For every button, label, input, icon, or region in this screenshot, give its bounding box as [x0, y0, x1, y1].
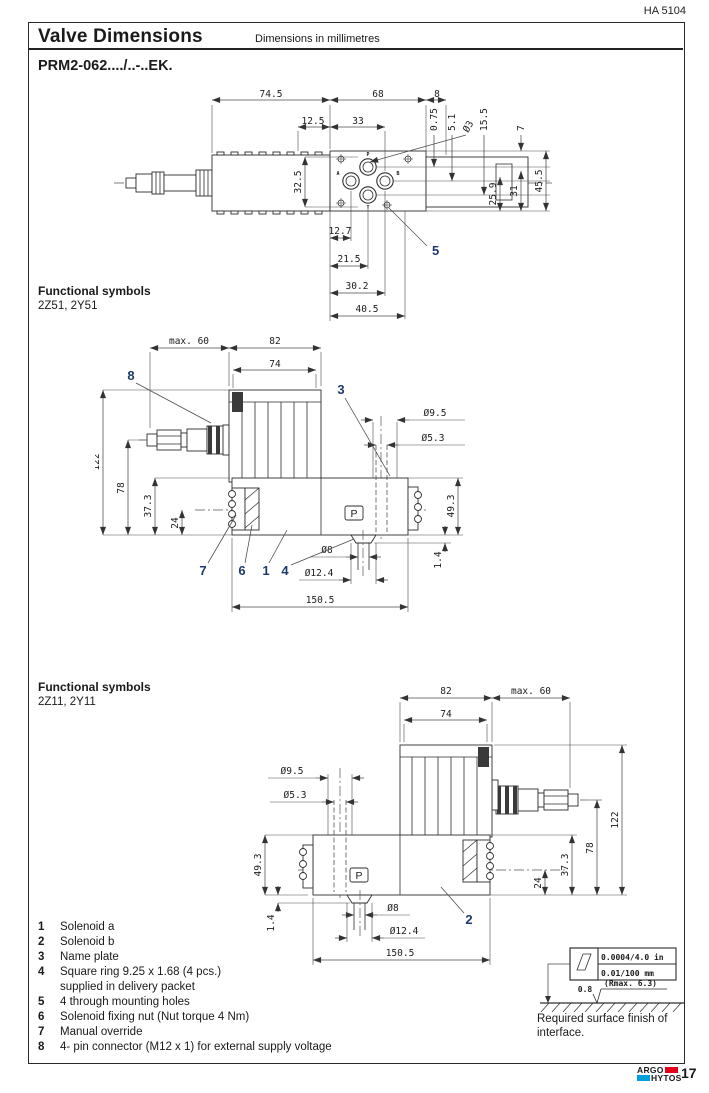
dim-493: 49.3 [446, 495, 457, 518]
brand-logo: ARGO HYTOS [637, 1066, 682, 1082]
port-label-p: P [355, 870, 362, 882]
callout-8: 8 [127, 368, 134, 383]
solenoid-fixing-nut [463, 840, 477, 882]
legend-item-text: Manual override [60, 1025, 332, 1040]
square-ring-port [351, 530, 376, 576]
dim-78: 78 [116, 482, 127, 494]
dim-68: 68 [372, 89, 384, 100]
legend-item: 3Name plate [38, 950, 332, 965]
document-code: HA 5104 [540, 5, 686, 17]
dim-d95: Ø9.5 [281, 766, 304, 777]
legend-item-number: 1 [38, 920, 60, 935]
dim-33: 33 [352, 116, 363, 127]
functional-symbols-heading: Functional symbols [38, 680, 151, 694]
dim-14: 1.4 [433, 551, 444, 568]
legend-item-number: 5 [38, 995, 60, 1010]
dim-78: 78 [585, 842, 596, 854]
callout-4: 4 [281, 563, 289, 578]
legend-item-number: 4 [38, 965, 60, 980]
top-view-drawing: P A B T 74.5 68 8 12.5 33 [100, 85, 560, 325]
dim-24: 24 [170, 517, 181, 529]
dim-127: 12.7 [329, 226, 352, 237]
datasheet-page: HA 5104 Valve Dimensions Dimensions in m… [0, 0, 709, 1093]
legend-item-text: supplied in delivery packet [60, 980, 332, 995]
dim-122: 122 [610, 811, 621, 828]
legend-item-text: Solenoid fixing nut (Nut torque 4 Nm) [60, 1010, 332, 1025]
functional-symbols-1: Functional symbols 2Z51, 2Y51 [38, 284, 151, 312]
dim-51: 5.1 [447, 114, 458, 131]
roughness-icon [593, 989, 601, 1003]
dim-31: 31 [509, 185, 520, 197]
top-view-outline [114, 151, 552, 214]
dim-74: 74 [440, 709, 452, 720]
dim-215: 21.5 [338, 254, 361, 265]
dim-d95: Ø9.5 [424, 408, 447, 419]
legend-item: 84- pin connector (M12 x 1) for external… [38, 1040, 332, 1055]
functional-symbols-heading: Functional symbols [38, 284, 151, 298]
dim-405: 40.5 [356, 304, 379, 315]
callout-7: 7 [199, 563, 206, 578]
ground-hatch [541, 1003, 681, 1012]
legend-item-text: 4 through mounting holes [60, 995, 332, 1010]
functional-symbols-codes: 2Z11, 2Y11 [38, 696, 151, 708]
dim-d53: Ø5.3 [284, 790, 307, 801]
dim-24: 24 [533, 877, 544, 889]
legend-item-text: Solenoid a [60, 920, 332, 935]
dim-745: 74.5 [260, 89, 283, 100]
dim-155: 15.5 [479, 108, 490, 131]
dim-122: 122 [95, 453, 102, 470]
dim-d124: Ø12.4 [390, 926, 419, 937]
legend-item: 54 through mounting holes [38, 995, 332, 1010]
callout-6: 6 [238, 563, 245, 578]
dim-259: 25.9 [488, 182, 499, 205]
legend-item: 6Solenoid fixing nut (Nut torque 4 Nm) [38, 1010, 332, 1025]
dim-373: 37.3 [560, 854, 571, 877]
legend-item-number: 2 [38, 935, 60, 950]
page-title: Valve Dimensions [38, 26, 203, 48]
legend-item-number: 3 [38, 950, 60, 965]
legend-item-text: Solenoid b [60, 935, 332, 950]
callout-5: 5 [432, 243, 439, 258]
brand-logo-hytos: HYTOS [651, 1074, 682, 1082]
logo-cyan-block [637, 1075, 650, 1081]
dim-373: 37.3 [143, 495, 154, 518]
dim-1505: 150.5 [386, 948, 415, 959]
side-view-1-outline: P [139, 390, 427, 576]
units-note: Dimensions in millimetres [255, 33, 380, 45]
dim-325: 32.5 [293, 171, 304, 194]
surface-finish-symbol: 0.0004/4.0 in 0.01/100 mm 0.8 (Rmax. 6.3… [535, 940, 695, 1012]
surface-finish-caption: Required surface finish of interface. [537, 1012, 695, 1040]
port-letter-p: P [366, 152, 369, 158]
dim-075: 0.75 [429, 108, 440, 131]
callout-1: 1 [262, 563, 269, 578]
dim-82: 82 [269, 336, 280, 347]
dim-455: 45.5 [534, 170, 545, 193]
flatness-inch: 0.0004/4.0 in [601, 952, 664, 962]
callout-2: 2 [465, 912, 472, 927]
legend-item-number: 8 [38, 1040, 60, 1055]
legend-item-number: 7 [38, 1025, 60, 1040]
callout-3: 3 [337, 382, 344, 397]
dim-max60: max. 60 [169, 336, 209, 347]
dim-d124: Ø12.4 [305, 568, 334, 579]
side-view-2-outline: P [298, 745, 586, 936]
dim-d8: Ø8 [387, 903, 399, 914]
dim-82: 82 [440, 686, 451, 697]
leader-arrow [545, 996, 551, 1003]
port-letter-b: B [396, 171, 399, 177]
port-label-p: P [350, 508, 357, 520]
valve-model: PRM2-062..../..-..EK. [38, 58, 173, 74]
dim-125: 12.5 [302, 116, 325, 127]
legend: 1Solenoid a 2Solenoid b 3Name plate 4Squ… [38, 920, 332, 1055]
legend-item: 4Square ring 9.25 x 1.68 (4 pcs.) [38, 965, 332, 980]
legend-item: 7Manual override [38, 1025, 332, 1040]
functional-symbols-codes: 2Z51, 2Y51 [38, 300, 151, 312]
page-number: 17 [681, 1065, 697, 1081]
legend-item-text: Name plate [60, 950, 332, 965]
port-letter-a: A [336, 171, 339, 177]
roughness-rmax: (Rmax. 6.3) [604, 979, 657, 988]
side-view-1-drawing: P max. 60 82 74 122 78 37.3 [95, 330, 515, 620]
dim-74: 74 [269, 359, 281, 370]
legend-item-text: 4- pin connector (M12 x 1) for external … [60, 1040, 332, 1055]
legend-item: 1Solenoid a [38, 920, 332, 935]
dim-7: 7 [516, 125, 527, 131]
legend-item-number: 6 [38, 1010, 60, 1025]
functional-symbols-2: Functional symbols 2Z11, 2Y11 [38, 680, 151, 708]
legend-item-text: Square ring 9.25 x 1.68 (4 pcs.) [60, 965, 332, 980]
dim-302: 30.2 [346, 281, 369, 292]
legend-item-continuation: supplied in delivery packet [38, 980, 332, 995]
roughness-value: 0.8 [578, 985, 593, 994]
dim-d8: Ø8 [321, 545, 333, 556]
legend-item: 2Solenoid b [38, 935, 332, 950]
dim-1505: 150.5 [306, 595, 335, 606]
dim-max60: max. 60 [511, 686, 551, 697]
flatness-mm: 0.01/100 mm [601, 969, 654, 978]
dim-493: 49.3 [253, 854, 264, 877]
dim-pin-hole: Ø3 [461, 119, 476, 134]
flatness-icon [577, 954, 591, 970]
dim-8: 8 [434, 89, 440, 100]
manual-override [477, 840, 494, 882]
solenoid-fixing-nut [245, 488, 259, 530]
square-ring-port [347, 890, 372, 936]
dim-d53: Ø5.3 [422, 433, 445, 444]
legend-item-number-spacer [38, 980, 60, 995]
